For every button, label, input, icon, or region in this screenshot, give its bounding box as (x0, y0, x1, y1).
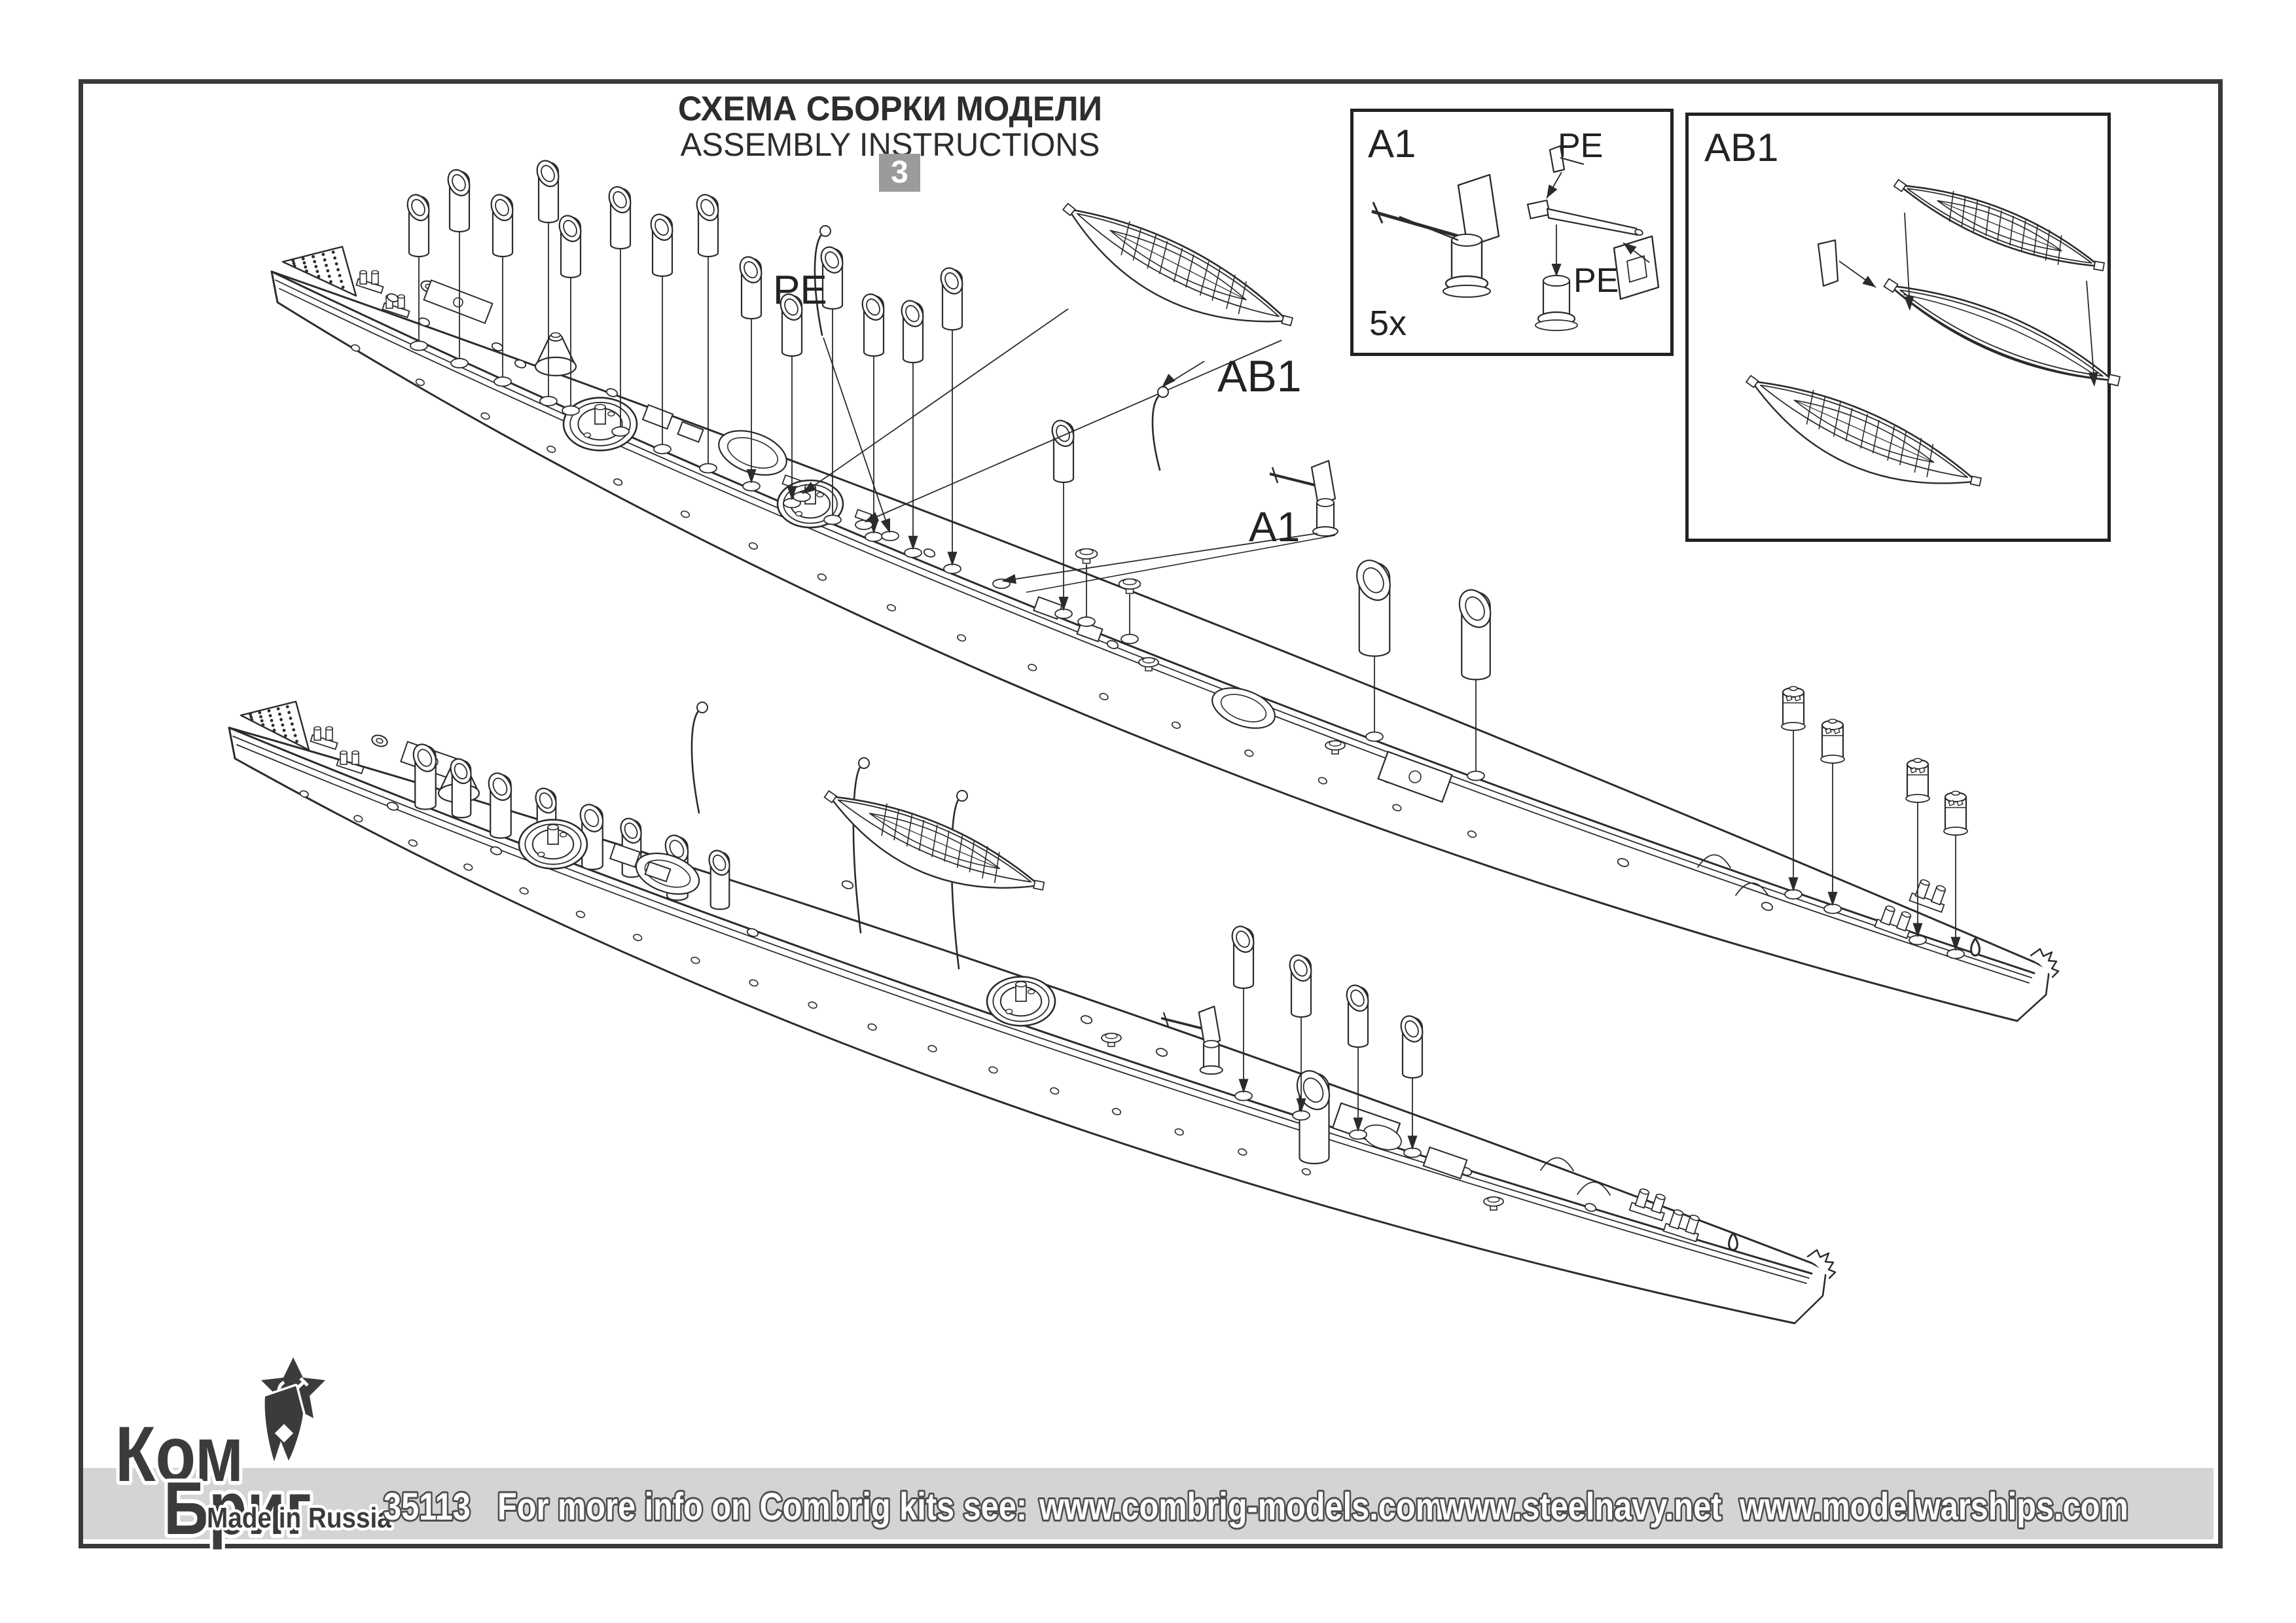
combrig-logo: Ком Бриг Made in Russia (115, 1357, 392, 1550)
footer-info-text: For more info on Combrig kits see: (497, 1486, 1027, 1528)
footer-info-line: 35113 For more info on Combrig kits see:… (384, 1486, 2128, 1528)
instruction-sheet-page: СХЕМА СБОРКИ МОДЕЛИ ASSEMBLY INSTRUCTION… (0, 0, 2296, 1623)
kit-number: 35113 (384, 1486, 471, 1528)
pennant-icon (265, 1386, 303, 1461)
footer-and-logo: Ком Бриг Made in Russia 35113 For more i… (0, 0, 2296, 1623)
footer-link-combrig: www.combrig-models.com (1039, 1486, 1444, 1528)
footer-link-modelwarships: www.modelwarships.com (1739, 1486, 2128, 1528)
footer-link-steelnavy: www.steelnavy.net (1439, 1486, 1721, 1528)
logo-tagline: Made in Russia (207, 1501, 392, 1534)
